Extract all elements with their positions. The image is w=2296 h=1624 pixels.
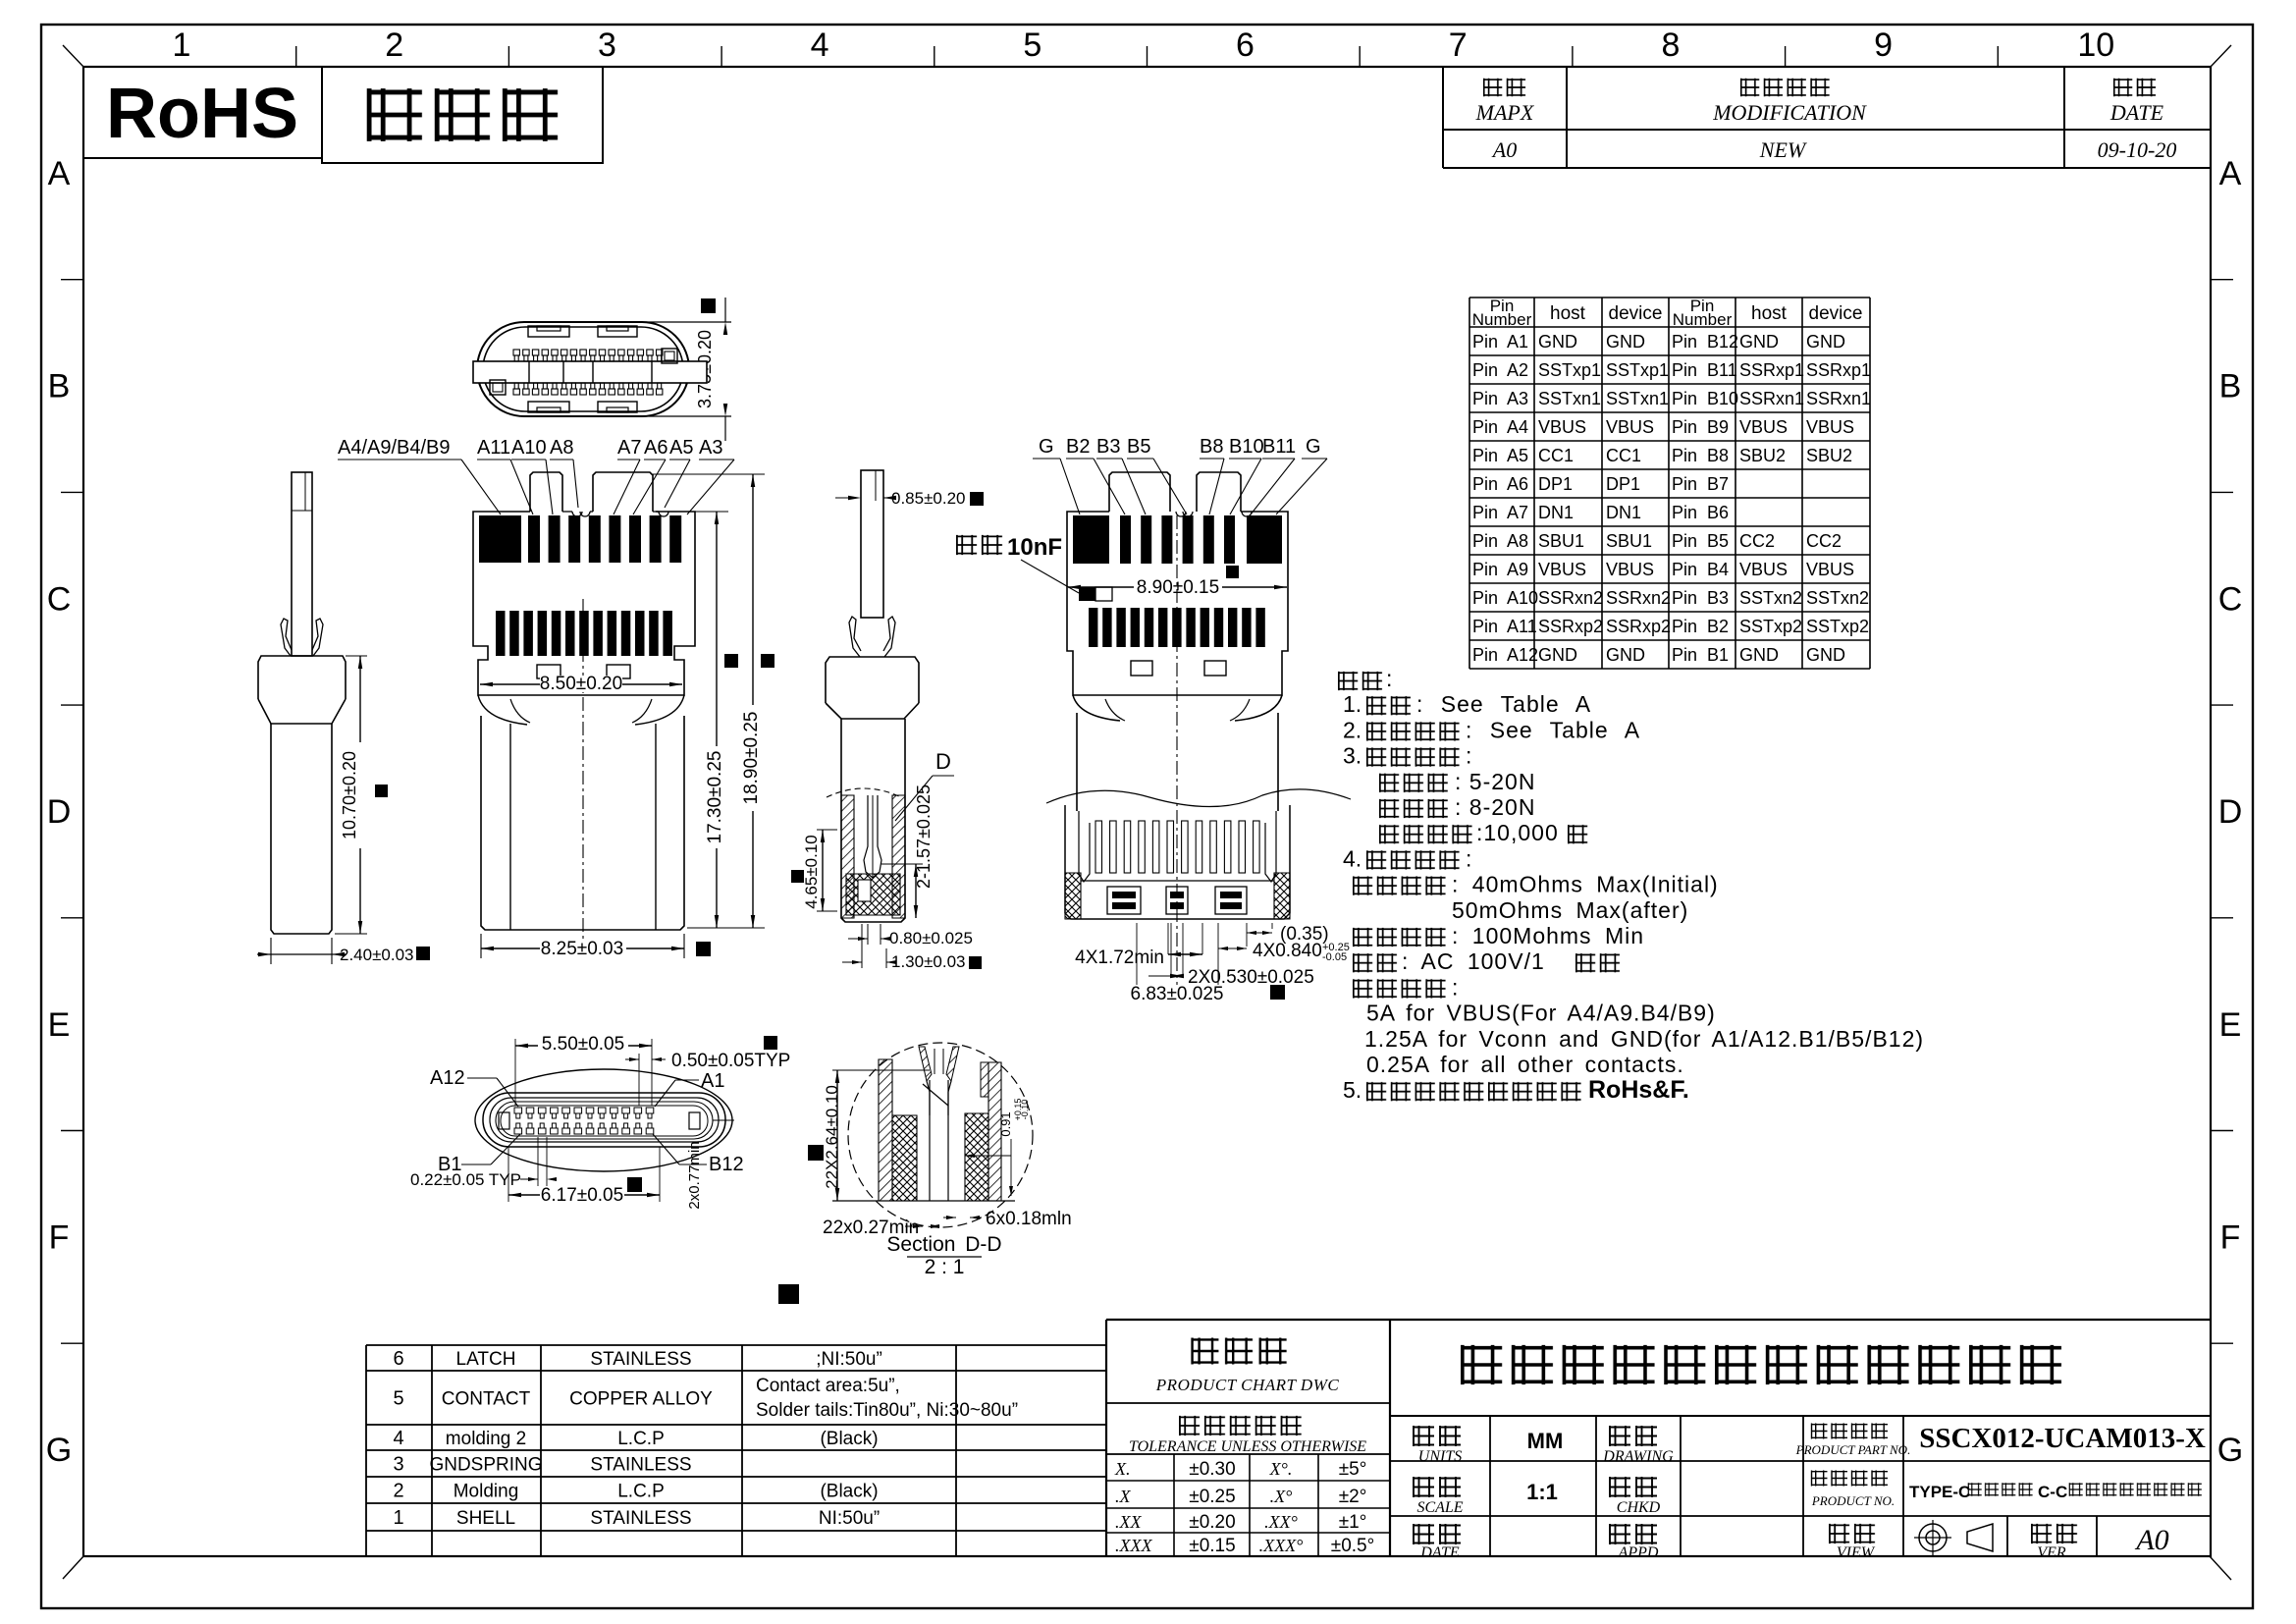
svg-text:B: B <box>48 368 71 406</box>
svg-text:5.: 5. <box>1343 1077 1362 1103</box>
svg-text:CHKD: CHKD <box>1617 1499 1661 1516</box>
svg-text:±0.20: ±0.20 <box>1189 1512 1235 1533</box>
svg-text:L.C.P: L.C.P <box>617 1429 665 1449</box>
svg-text:SSTxp1: SSTxp1 <box>1538 360 1601 380</box>
svg-text:0.22±0.05 TYP: 0.22±0.05 TYP <box>410 1170 521 1189</box>
svg-text:Pin A9: Pin A9 <box>1472 560 1528 579</box>
svg-text:5A for VBUS(For A4/A9.B4/B9: 5A for VBUS(For A4/A9.B4/B9) <box>1366 1001 1716 1026</box>
svg-text:5.50±0.05: 5.50±0.05 <box>542 1034 624 1055</box>
svg-text:Pin B6: Pin B6 <box>1672 503 1729 522</box>
svg-text:DP1: DP1 <box>1538 474 1573 494</box>
svg-text:SSTxp2: SSTxp2 <box>1739 617 1802 636</box>
svg-text:2.: 2. <box>1343 717 1362 742</box>
svg-text:molding 2: molding 2 <box>446 1429 526 1449</box>
svg-text:6.17±0.05: 6.17±0.05 <box>541 1185 623 1206</box>
svg-text:6: 6 <box>393 1348 403 1370</box>
svg-text:device: device <box>1809 303 1863 324</box>
svg-text:A: A <box>48 155 71 192</box>
svg-text:GND: GND <box>1538 332 1577 352</box>
svg-text:D: D <box>2218 793 2243 831</box>
svg-text:CC2: CC2 <box>1739 531 1775 551</box>
svg-text:: See Table A: : See Table A <box>1466 717 1640 742</box>
svg-text:Pin B12: Pin B12 <box>1672 332 1738 352</box>
svg-text:B10: B10 <box>1229 436 1264 458</box>
svg-text:: 100Mohms Min: : 100Mohms Min <box>1452 923 1644 948</box>
svg-text:SCALE: SCALE <box>1416 1499 1463 1516</box>
svg-text:1.30±0.03: 1.30±0.03 <box>891 952 966 971</box>
svg-text:A8: A8 <box>550 437 573 459</box>
svg-text:SSTxn2: SSTxn2 <box>1806 588 1869 608</box>
svg-text:Solder tails:Tin80u”, Ni:30~: Solder tails:Tin80u”, Ni:30~80u” <box>756 1400 1018 1421</box>
svg-text:B: B <box>2219 368 2242 406</box>
svg-text:GND: GND <box>1806 645 1845 665</box>
svg-text:B3: B3 <box>1096 436 1120 458</box>
svg-text:0.80±0.025: 0.80±0.025 <box>889 929 973 947</box>
svg-text:A11: A11 <box>477 437 510 459</box>
svg-text:09-10-20: 09-10-20 <box>2098 137 2177 162</box>
svg-text::: : <box>1452 974 1458 1000</box>
svg-text:CC1: CC1 <box>1538 446 1574 465</box>
svg-text:CONTACT: CONTACT <box>442 1389 531 1410</box>
svg-text:Number: Number <box>1673 310 1733 329</box>
svg-text:STAINLESS: STAINLESS <box>590 1349 691 1370</box>
svg-text:Pin B2: Pin B2 <box>1672 617 1729 636</box>
svg-text:PRODUCT NO.: PRODUCT NO. <box>1811 1493 1895 1508</box>
svg-text:A4/A9/B4/B9: A4/A9/B4/B9 <box>338 437 451 459</box>
svg-text:SSTxp1: SSTxp1 <box>1606 360 1669 380</box>
svg-text:±0.30: ±0.30 <box>1189 1459 1235 1480</box>
svg-text:VIEW: VIEW <box>1837 1544 1876 1561</box>
svg-text:MM: MM <box>1527 1429 1564 1453</box>
svg-text:3: 3 <box>598 27 616 64</box>
svg-text:(Black): (Black) <box>820 1429 878 1449</box>
svg-text:L.C.P: L.C.P <box>617 1482 665 1502</box>
svg-text:6: 6 <box>1236 27 1255 64</box>
svg-text:DATE: DATE <box>1419 1544 1460 1561</box>
svg-text:Pin A5: Pin A5 <box>1472 446 1528 465</box>
svg-text:Pin B10: Pin B10 <box>1672 389 1738 408</box>
svg-text:: 5-20N: : 5-20N <box>1455 769 1535 794</box>
svg-text:CC1: CC1 <box>1606 446 1641 465</box>
svg-text:UNITS: UNITS <box>1418 1448 1462 1465</box>
svg-text:-0.10: -0.10 <box>1020 1100 1030 1120</box>
svg-text:.XX°: .XX° <box>1264 1512 1298 1532</box>
svg-text:2-1.57±0.025: 2-1.57±0.025 <box>914 785 934 889</box>
svg-text:GND: GND <box>1606 645 1645 665</box>
svg-text:17.30±0.25: 17.30±0.25 <box>705 751 725 844</box>
svg-text:A0: A0 <box>1491 137 1517 162</box>
svg-text:2x0.77min: 2x0.77min <box>686 1141 703 1209</box>
svg-text:A3: A3 <box>699 437 722 459</box>
svg-text:1: 1 <box>393 1507 403 1529</box>
svg-text:.XXX: .XXX <box>1115 1536 1152 1555</box>
svg-text:10: 10 <box>2077 27 2114 64</box>
svg-text:6.83±0.025: 6.83±0.025 <box>1131 984 1224 1004</box>
svg-text:1: 1 <box>173 27 191 64</box>
svg-text:SSCX012-UCAM013-X: SSCX012-UCAM013-X <box>1919 1423 2206 1454</box>
svg-text:host: host <box>1751 303 1788 324</box>
svg-text:(Black): (Black) <box>820 1482 878 1502</box>
svg-text:TOLERANCE UNLESS OTHERWISE: TOLERANCE UNLESS OTHERWISE <box>1129 1438 1366 1455</box>
svg-text:Pin B1: Pin B1 <box>1672 645 1729 665</box>
svg-text:A: A <box>2219 155 2242 192</box>
svg-text:SBU1: SBU1 <box>1538 531 1584 551</box>
svg-text:A1: A1 <box>701 1070 724 1092</box>
svg-text:B2: B2 <box>1066 436 1090 458</box>
svg-text:1:1: 1:1 <box>1526 1480 1558 1504</box>
svg-text:22X2.64±0.10: 22X2.64±0.10 <box>823 1085 841 1189</box>
svg-text:±5°: ±5° <box>1339 1459 1367 1480</box>
svg-text:APPD: APPD <box>1618 1544 1659 1561</box>
svg-text:Pin B5: Pin B5 <box>1672 531 1729 551</box>
svg-text:C-C: C-C <box>2038 1483 2067 1501</box>
svg-text:RoHS: RoHS <box>106 75 298 153</box>
svg-text:PRODUCT CHART DWC: PRODUCT CHART DWC <box>1155 1376 1340 1394</box>
svg-text:7: 7 <box>1449 27 1468 64</box>
svg-text:VBUS: VBUS <box>1538 417 1586 437</box>
svg-text:18.90±0.25: 18.90±0.25 <box>741 712 762 805</box>
svg-text:SSRxn1: SSRxn1 <box>1739 389 1804 408</box>
svg-text:RoHs&F.: RoHs&F. <box>1588 1076 1689 1104</box>
svg-text:TYPE-C: TYPE-C <box>1909 1483 1970 1501</box>
svg-text:4X1.72min: 4X1.72min <box>1075 947 1164 968</box>
svg-text:SSRxn1: SSRxn1 <box>1806 389 1871 408</box>
svg-text:LATCH: LATCH <box>456 1349 516 1370</box>
svg-text:A7: A7 <box>617 437 641 459</box>
svg-text:±1°: ±1° <box>1339 1512 1367 1533</box>
svg-text:STAINLESS: STAINLESS <box>590 1508 691 1529</box>
svg-text:2: 2 <box>385 27 403 64</box>
svg-text:DN1: DN1 <box>1538 503 1574 522</box>
svg-text:NI:50u”: NI:50u” <box>819 1508 880 1529</box>
svg-text:SBU1: SBU1 <box>1606 531 1652 551</box>
svg-text:B5: B5 <box>1127 436 1150 458</box>
svg-text:SSTxn1: SSTxn1 <box>1606 389 1669 408</box>
svg-text:SSRxn2: SSRxn2 <box>1538 588 1603 608</box>
svg-text:Pin A4: Pin A4 <box>1472 417 1528 437</box>
svg-text:MODIFICATION: MODIFICATION <box>1712 100 1867 125</box>
svg-text::: : <box>1466 845 1471 871</box>
svg-text:: AC 100V/1: : AC 100V/1 <box>1402 948 1545 974</box>
svg-text:G: G <box>1039 436 1054 458</box>
svg-text:Pin A7: Pin A7 <box>1472 503 1528 522</box>
svg-text:DP1: DP1 <box>1606 474 1640 494</box>
svg-text:8.25±0.03: 8.25±0.03 <box>541 939 623 959</box>
svg-text:4: 4 <box>393 1428 403 1449</box>
svg-text:6x0.18mln: 6x0.18mln <box>986 1209 1072 1229</box>
svg-text:Pin A2: Pin A2 <box>1472 360 1528 380</box>
svg-text:SHELL: SHELL <box>456 1508 515 1529</box>
svg-text:SBU2: SBU2 <box>1739 446 1786 465</box>
svg-text:5: 5 <box>393 1388 403 1410</box>
svg-text:SSRxp2: SSRxp2 <box>1538 617 1603 636</box>
svg-text:10.70±0.20: 10.70±0.20 <box>340 751 359 839</box>
svg-text:D: D <box>47 793 72 831</box>
svg-text:D: D <box>935 749 951 774</box>
svg-text:2: 2 <box>393 1481 403 1502</box>
svg-text::: : <box>1466 743 1471 769</box>
svg-text:GNDSPRING: GNDSPRING <box>429 1455 542 1476</box>
svg-text:;NI:50u”: ;NI:50u” <box>816 1349 882 1370</box>
svg-text:Section D-D: Section D-D <box>886 1233 1001 1256</box>
svg-text:Pin B9: Pin B9 <box>1672 417 1729 437</box>
svg-text:±0.5°: ±0.5° <box>1331 1536 1374 1556</box>
svg-text:Pin A10: Pin A10 <box>1472 588 1538 608</box>
svg-text:COPPER ALLOY: COPPER ALLOY <box>569 1389 713 1410</box>
svg-text:DN1: DN1 <box>1606 503 1641 522</box>
svg-text:: 8-20N: : 8-20N <box>1455 794 1535 820</box>
svg-text:SSTxp2: SSTxp2 <box>1806 617 1869 636</box>
svg-text:F: F <box>49 1219 70 1257</box>
svg-text:A0: A0 <box>2134 1524 2168 1556</box>
svg-text:Pin B4: Pin B4 <box>1672 560 1729 579</box>
svg-text:Pin B7: Pin B7 <box>1672 474 1729 494</box>
svg-text:NEW: NEW <box>1759 137 1807 162</box>
svg-text:1.: 1. <box>1343 691 1362 717</box>
svg-text:Pin B8: Pin B8 <box>1672 446 1729 465</box>
svg-text:1.25A for Vconn and GND(fo: 1.25A for Vconn and GND(for A1/A12.B1/B5… <box>1364 1026 1924 1052</box>
svg-text:GND: GND <box>1806 332 1845 352</box>
svg-text:A6: A6 <box>644 437 667 459</box>
svg-text:STAINLESS: STAINLESS <box>590 1455 691 1476</box>
svg-text:VBUS: VBUS <box>1739 560 1788 579</box>
svg-text:4X0.840: 4X0.840 <box>1253 941 1322 961</box>
svg-text:Pin B3: Pin B3 <box>1672 588 1729 608</box>
svg-text:.X: .X <box>1115 1487 1132 1506</box>
svg-text:SSRxn2: SSRxn2 <box>1606 588 1671 608</box>
svg-text:.XX: .XX <box>1115 1512 1142 1532</box>
svg-text:±2°: ±2° <box>1339 1487 1367 1507</box>
svg-text:VBUS: VBUS <box>1606 560 1654 579</box>
svg-text:3: 3 <box>393 1454 403 1476</box>
svg-text:G: G <box>46 1432 72 1469</box>
svg-text:DATE: DATE <box>2109 100 2164 125</box>
svg-text:±0.25: ±0.25 <box>1189 1487 1235 1507</box>
svg-text:C: C <box>47 580 72 618</box>
svg-text:DRAWING: DRAWING <box>1602 1448 1674 1465</box>
svg-text:.X°: .X° <box>1270 1487 1293 1506</box>
svg-text:Pin A8: Pin A8 <box>1472 531 1528 551</box>
svg-text:8.50±0.20: 8.50±0.20 <box>540 674 622 694</box>
svg-text:-0.05: -0.05 <box>1322 951 1347 963</box>
svg-text:Number: Number <box>1472 310 1532 329</box>
svg-text:4.65±0.10: 4.65±0.10 <box>802 835 821 909</box>
svg-text:GND: GND <box>1739 332 1779 352</box>
svg-text:VER: VER <box>2037 1544 2066 1561</box>
svg-text:4.: 4. <box>1343 845 1362 871</box>
svg-text:50mOhms Max(after): 50mOhms Max(after) <box>1452 897 1688 923</box>
svg-text:A12: A12 <box>430 1067 465 1089</box>
svg-text:E: E <box>48 1006 71 1044</box>
svg-text:CC2: CC2 <box>1806 531 1842 551</box>
svg-text:GND: GND <box>1538 645 1577 665</box>
svg-text:2 : 1: 2 : 1 <box>925 1256 965 1278</box>
svg-text:SSTxn2: SSTxn2 <box>1739 588 1802 608</box>
svg-text:SBU2: SBU2 <box>1806 446 1852 465</box>
svg-text:VBUS: VBUS <box>1806 417 1854 437</box>
svg-text:Pin A6: Pin A6 <box>1472 474 1528 494</box>
svg-text:VBUS: VBUS <box>1739 417 1788 437</box>
svg-text:SSRxp1: SSRxp1 <box>1739 360 1804 380</box>
svg-text:.XXX°: .XXX° <box>1259 1536 1304 1555</box>
svg-text:X°.: X°. <box>1269 1459 1293 1479</box>
svg-text:9: 9 <box>1874 27 1893 64</box>
svg-text:0.85±0.20: 0.85±0.20 <box>891 489 966 508</box>
svg-text:5: 5 <box>1023 27 1041 64</box>
svg-text:Pin B11: Pin B11 <box>1672 360 1737 380</box>
svg-text:G: G <box>1306 436 1321 458</box>
svg-text:0.91: 0.91 <box>998 1111 1013 1136</box>
svg-text:±0.15: ±0.15 <box>1189 1536 1235 1556</box>
svg-text:0.25A for all other contac: 0.25A for all other contacts. <box>1366 1052 1684 1077</box>
svg-text:device: device <box>1609 303 1663 324</box>
svg-text:Pin A3: Pin A3 <box>1472 389 1528 408</box>
svg-text:Pin A11: Pin A11 <box>1472 617 1537 636</box>
svg-text:8.90±0.15: 8.90±0.15 <box>1137 577 1219 598</box>
svg-text:PRODUCT PART NO.: PRODUCT PART NO. <box>1795 1442 1911 1457</box>
svg-text:A10: A10 <box>511 437 547 459</box>
svg-text:B11: B11 <box>1262 436 1296 458</box>
svg-text:: See Table A: : See Table A <box>1416 691 1591 717</box>
svg-text:G: G <box>2217 1432 2243 1469</box>
svg-text::10,000: :10,000 <box>1476 820 1559 845</box>
svg-text:E: E <box>2219 1006 2242 1044</box>
svg-text:B12: B12 <box>709 1154 744 1175</box>
svg-text:F: F <box>2220 1219 2241 1257</box>
svg-text:8: 8 <box>1661 27 1680 64</box>
svg-text::: : <box>1386 666 1392 691</box>
svg-text:: 40mOhms Max(Initial): : 40mOhms Max(Initial) <box>1452 872 1719 897</box>
svg-text:GND: GND <box>1739 645 1779 665</box>
svg-text:VBUS: VBUS <box>1606 417 1654 437</box>
svg-text:Molding: Molding <box>454 1482 519 1502</box>
svg-text:Contact area:5u”,: Contact area:5u”, <box>756 1376 900 1396</box>
svg-text:0.50±0.05TYP: 0.50±0.05TYP <box>671 1051 790 1071</box>
svg-text:SSRxp2: SSRxp2 <box>1606 617 1671 636</box>
svg-text:2.40±0.03: 2.40±0.03 <box>340 946 414 964</box>
svg-text:GND: GND <box>1606 332 1645 352</box>
svg-text:4: 4 <box>811 27 829 64</box>
svg-text:VBUS: VBUS <box>1538 560 1586 579</box>
svg-text:VBUS: VBUS <box>1806 560 1854 579</box>
svg-text:3.: 3. <box>1343 743 1362 769</box>
svg-text:X.: X. <box>1114 1459 1131 1479</box>
svg-text:SSTxn1: SSTxn1 <box>1538 389 1601 408</box>
svg-text:host: host <box>1550 303 1586 324</box>
svg-text:C: C <box>2218 580 2243 618</box>
svg-text:B8: B8 <box>1200 436 1223 458</box>
svg-text:A5: A5 <box>669 437 693 459</box>
svg-text:Pin A1: Pin A1 <box>1472 332 1528 352</box>
svg-text:SSRxp1: SSRxp1 <box>1806 360 1871 380</box>
svg-text:10nF: 10nF <box>1007 534 1062 561</box>
svg-text:Pin A12: Pin A12 <box>1472 645 1538 665</box>
svg-text:MAPX: MAPX <box>1475 100 1535 125</box>
